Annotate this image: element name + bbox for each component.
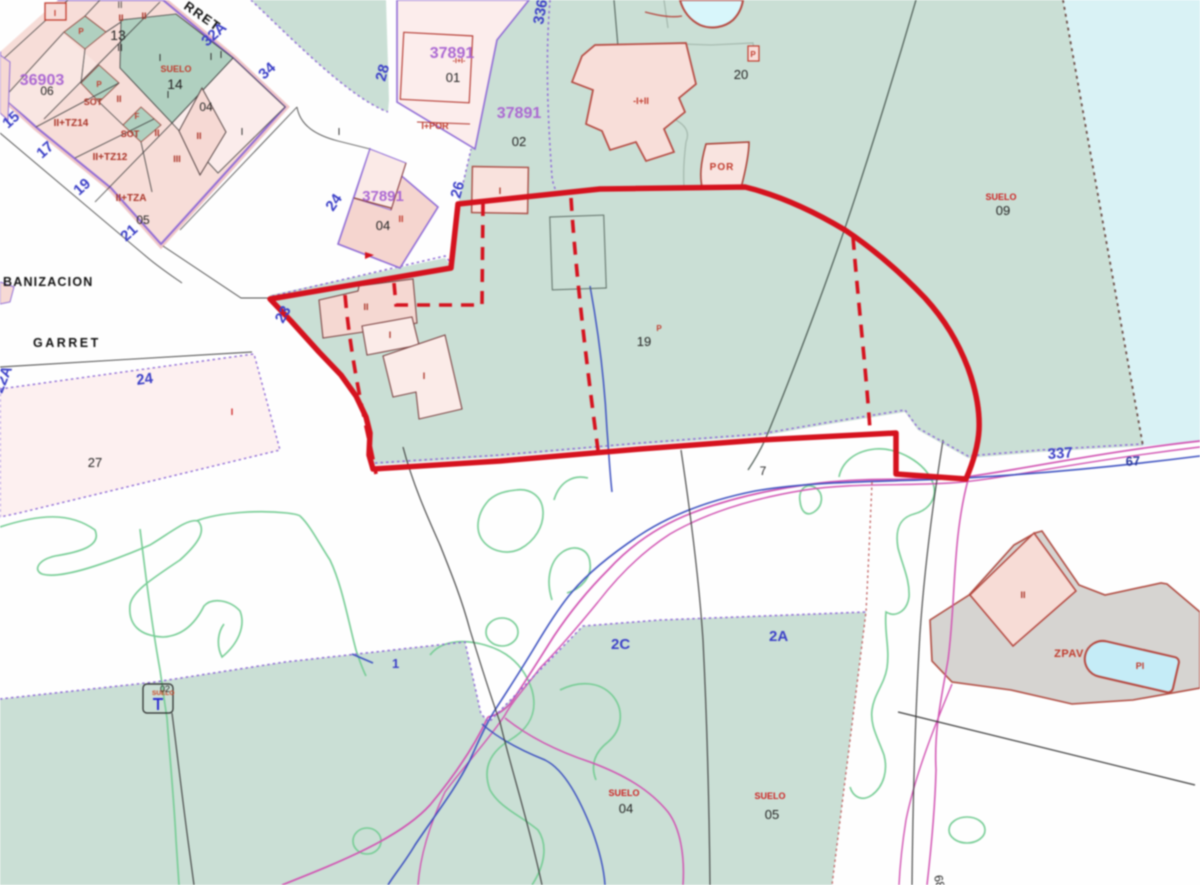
svg-text:II: II <box>196 131 201 141</box>
svg-text:BANIZACION: BANIZACION <box>3 275 93 289</box>
svg-text:I: I <box>167 90 170 101</box>
svg-text:05: 05 <box>136 213 150 227</box>
svg-text:SUELO: SUELO <box>160 64 191 74</box>
svg-text:1: 1 <box>392 656 399 671</box>
svg-text:24: 24 <box>135 370 155 389</box>
svg-text:I: I <box>389 330 392 340</box>
svg-text:I: I <box>159 53 162 64</box>
svg-text:P: P <box>78 27 84 36</box>
svg-text:GARRET: GARRET <box>33 336 101 350</box>
svg-text:7: 7 <box>760 464 767 478</box>
svg-text:P: P <box>96 80 102 89</box>
svg-text:SOT: SOT <box>121 129 140 139</box>
svg-text:I: I <box>220 50 223 61</box>
svg-text:37891: 37891 <box>362 188 404 205</box>
svg-text:I: I <box>338 127 341 138</box>
svg-text:27: 27 <box>88 455 102 470</box>
svg-text:13: 13 <box>110 27 126 43</box>
svg-text:II: II <box>398 214 403 224</box>
svg-text:II: II <box>118 13 123 23</box>
svg-text:I: I <box>210 52 213 63</box>
svg-text:II: II <box>363 302 368 312</box>
svg-text:20: 20 <box>734 67 748 82</box>
svg-text:I: I <box>231 407 234 417</box>
svg-text:PI: PI <box>1136 661 1145 671</box>
svg-text:SUELO: SUELO <box>985 192 1016 202</box>
svg-text:04: 04 <box>376 218 390 233</box>
svg-text:2A: 2A <box>769 628 788 645</box>
svg-text:F: F <box>135 112 140 121</box>
svg-text:ZPAV: ZPAV <box>1054 648 1084 660</box>
svg-text:-I+I-: -I+I- <box>453 58 466 65</box>
svg-text:19: 19 <box>637 334 651 349</box>
svg-text:-I+II: -I+II <box>633 96 649 106</box>
svg-text:SUELO: SUELO <box>754 791 785 801</box>
svg-text:01: 01 <box>446 70 460 85</box>
svg-text:02: 02 <box>160 684 170 694</box>
svg-text:04: 04 <box>199 100 213 114</box>
svg-text:337: 337 <box>1047 444 1073 463</box>
svg-text:I: I <box>54 9 56 18</box>
svg-text:I: I <box>499 186 502 196</box>
svg-text:I: I <box>423 371 426 381</box>
svg-text:02: 02 <box>512 134 526 149</box>
svg-text:I+POR: I+POR <box>421 121 449 131</box>
svg-text:2C: 2C <box>611 636 630 653</box>
svg-text:05: 05 <box>765 807 779 822</box>
svg-text:67: 67 <box>1125 453 1140 469</box>
svg-text:II: II <box>141 11 146 21</box>
svg-text:SOT: SOT <box>84 97 103 107</box>
svg-text:II: II <box>117 43 123 54</box>
svg-text:04: 04 <box>619 801 633 816</box>
svg-text:II: II <box>116 94 121 104</box>
svg-text:P: P <box>750 50 756 59</box>
svg-text:09: 09 <box>996 203 1010 218</box>
svg-text:SUELO: SUELO <box>608 788 639 798</box>
svg-text:II: II <box>1020 590 1025 600</box>
svg-text:II: II <box>117 0 122 10</box>
svg-text:II+TZ12: II+TZ12 <box>93 152 128 163</box>
svg-text:II+TZA: II+TZA <box>116 193 147 204</box>
svg-text:14: 14 <box>167 76 183 92</box>
svg-text:68: 68 <box>931 874 948 885</box>
svg-text:P: P <box>656 324 662 333</box>
svg-text:37891: 37891 <box>497 105 542 122</box>
svg-text:II: II <box>154 128 159 138</box>
svg-text:36903: 36903 <box>20 72 65 89</box>
svg-text:III: III <box>173 154 181 164</box>
svg-text:POR: POR <box>710 162 735 173</box>
svg-text:II+TZ14: II+TZ14 <box>54 118 89 129</box>
svg-text:I: I <box>241 127 244 138</box>
